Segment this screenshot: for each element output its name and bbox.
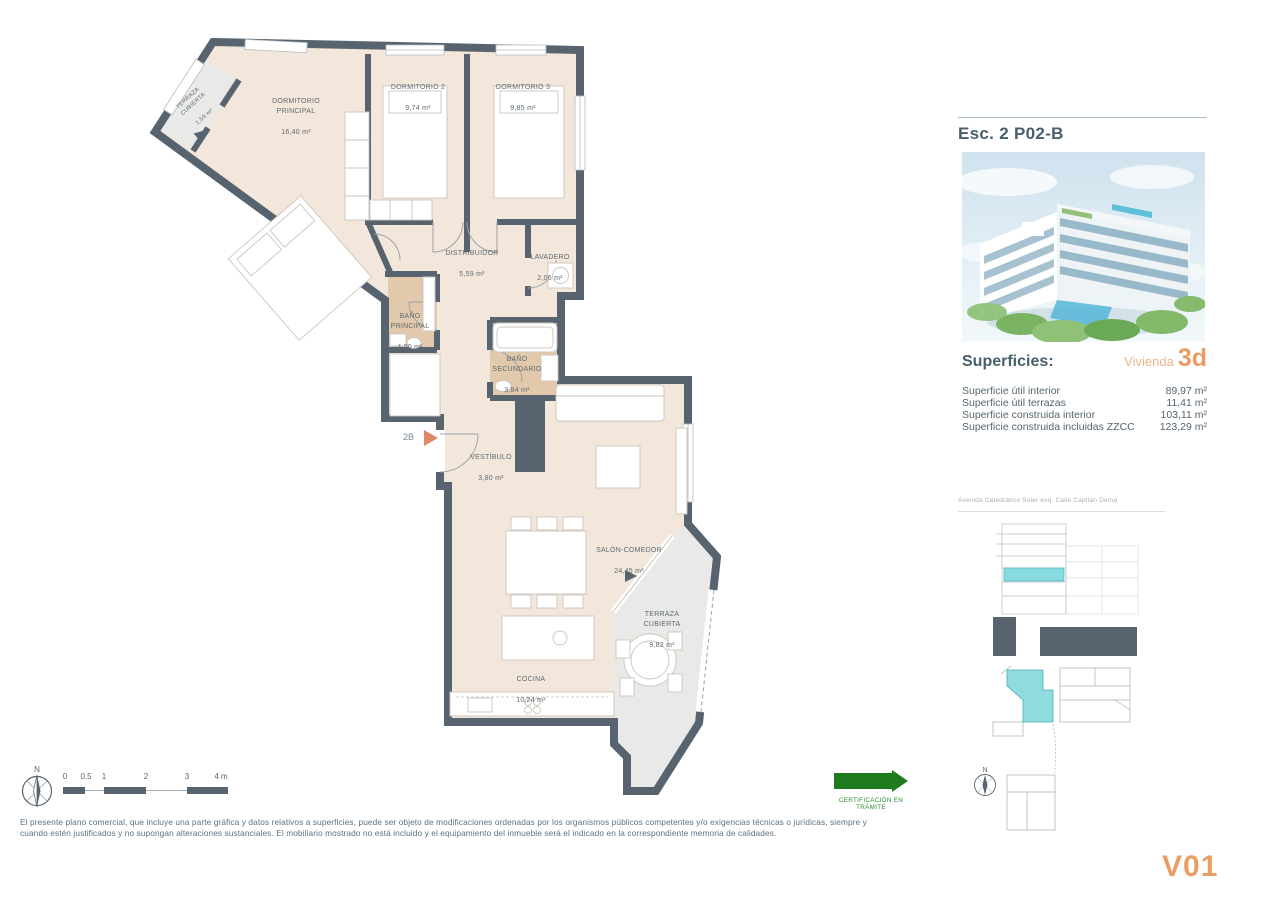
building-render-illustration [962, 152, 1205, 342]
floor-plan-drawing [0, 0, 940, 810]
table-row: Superficie útil interior 89,97 m² [962, 385, 1207, 397]
building-render [962, 152, 1205, 342]
vivienda-code: 3d [1178, 344, 1207, 372]
compass-icon: N [975, 767, 996, 796]
scale-segment [63, 787, 85, 794]
svg-text:N: N [982, 767, 987, 774]
certification-arrow-icon [834, 770, 908, 794]
superficies-header: Superficies: Vivienda3d [962, 344, 1207, 373]
wall-pillar [515, 400, 545, 472]
scale-segment [104, 787, 146, 794]
page-title: Esc. 2 P02-B [958, 124, 1064, 144]
room-label-salon-comedor: SALÓN-COMEDOR 24,45 m² [596, 537, 662, 586]
floor-plan: TERRAZA CUBIERTA 1,59 m² DORMITORIO PRIN… [0, 0, 940, 810]
table-row: Superficie útil terrazas 11,41 m² [962, 397, 1207, 409]
highlighted-floor [1004, 568, 1064, 581]
entrance-gap [435, 430, 445, 472]
scale-segment [187, 787, 228, 794]
certification-stamp: CERTIFICACIÓN EN TRÁMITE [828, 770, 914, 811]
room-label-distribuidor: DISTRIBUIDOR 5,59 m² [445, 240, 498, 289]
scale-bar: 0 0.5 1 2 3 4 m [63, 772, 238, 798]
room-label-vestibulo: VESTÍBULO 3,80 m² [470, 444, 512, 493]
room-label-dormitorio-3: DORMITORIO 3 9,85 m² [496, 74, 550, 123]
floor-plan-sheet: TERRAZA CUBIERTA 1,59 m² DORMITORIO PRIN… [0, 0, 1280, 905]
room-label-dormitorio-principal: DORMITORIO PRINCIPAL 16,40 m² [272, 88, 320, 147]
table-row: Superficie construida incluidas ZZCC 123… [962, 421, 1207, 433]
address-line: Avenida Catedrático Soler esq. Calle Cap… [958, 497, 1198, 504]
superficies-table: Superficie útil interior 89,97 m² Superf… [962, 385, 1207, 433]
address-divider [958, 511, 1165, 512]
room-label-bano-secundario: BAÑO SECUNDARIO 3,84 m² [492, 346, 541, 405]
entrance-unit-label: 2B [403, 432, 414, 442]
room-label-terraza-bottom: TERRAZA CUBIERTA 9,82 m² [644, 601, 681, 660]
compass-icon: N [16, 763, 58, 816]
divider-line [958, 117, 1207, 118]
svg-text:N: N [34, 765, 40, 774]
table-row: Superficie construida interior 103,11 m² [962, 409, 1207, 421]
room-label-dormitorio-2: DORMITORIO 2 9,74 m² [391, 74, 445, 123]
room-label-bano-principal: BAÑO PRINCIPAL 4,00 m² [391, 303, 430, 362]
vivienda-label: Vivienda [1124, 354, 1174, 369]
room-label-lavadero: LAVADERO 2,06 m² [530, 244, 569, 293]
side-panel: Esc. 2 P02-B [958, 0, 1208, 905]
room-label-cocina: COCINA 10,24 m² [516, 666, 546, 715]
vivienda-tag: Vivienda3d [1124, 344, 1207, 373]
building-section-diagram [988, 518, 1148, 665]
highlighted-unit [1007, 670, 1053, 722]
superficies-heading: Superficies: [962, 353, 1054, 371]
ground-mass [993, 617, 1137, 656]
version-code: V01 [1162, 850, 1218, 884]
key-plan: N [965, 660, 1140, 837]
certification-label: CERTIFICACIÓN EN TRÁMITE [828, 797, 914, 811]
legal-disclaimer: El presente plano comercial, que incluye… [20, 817, 925, 839]
